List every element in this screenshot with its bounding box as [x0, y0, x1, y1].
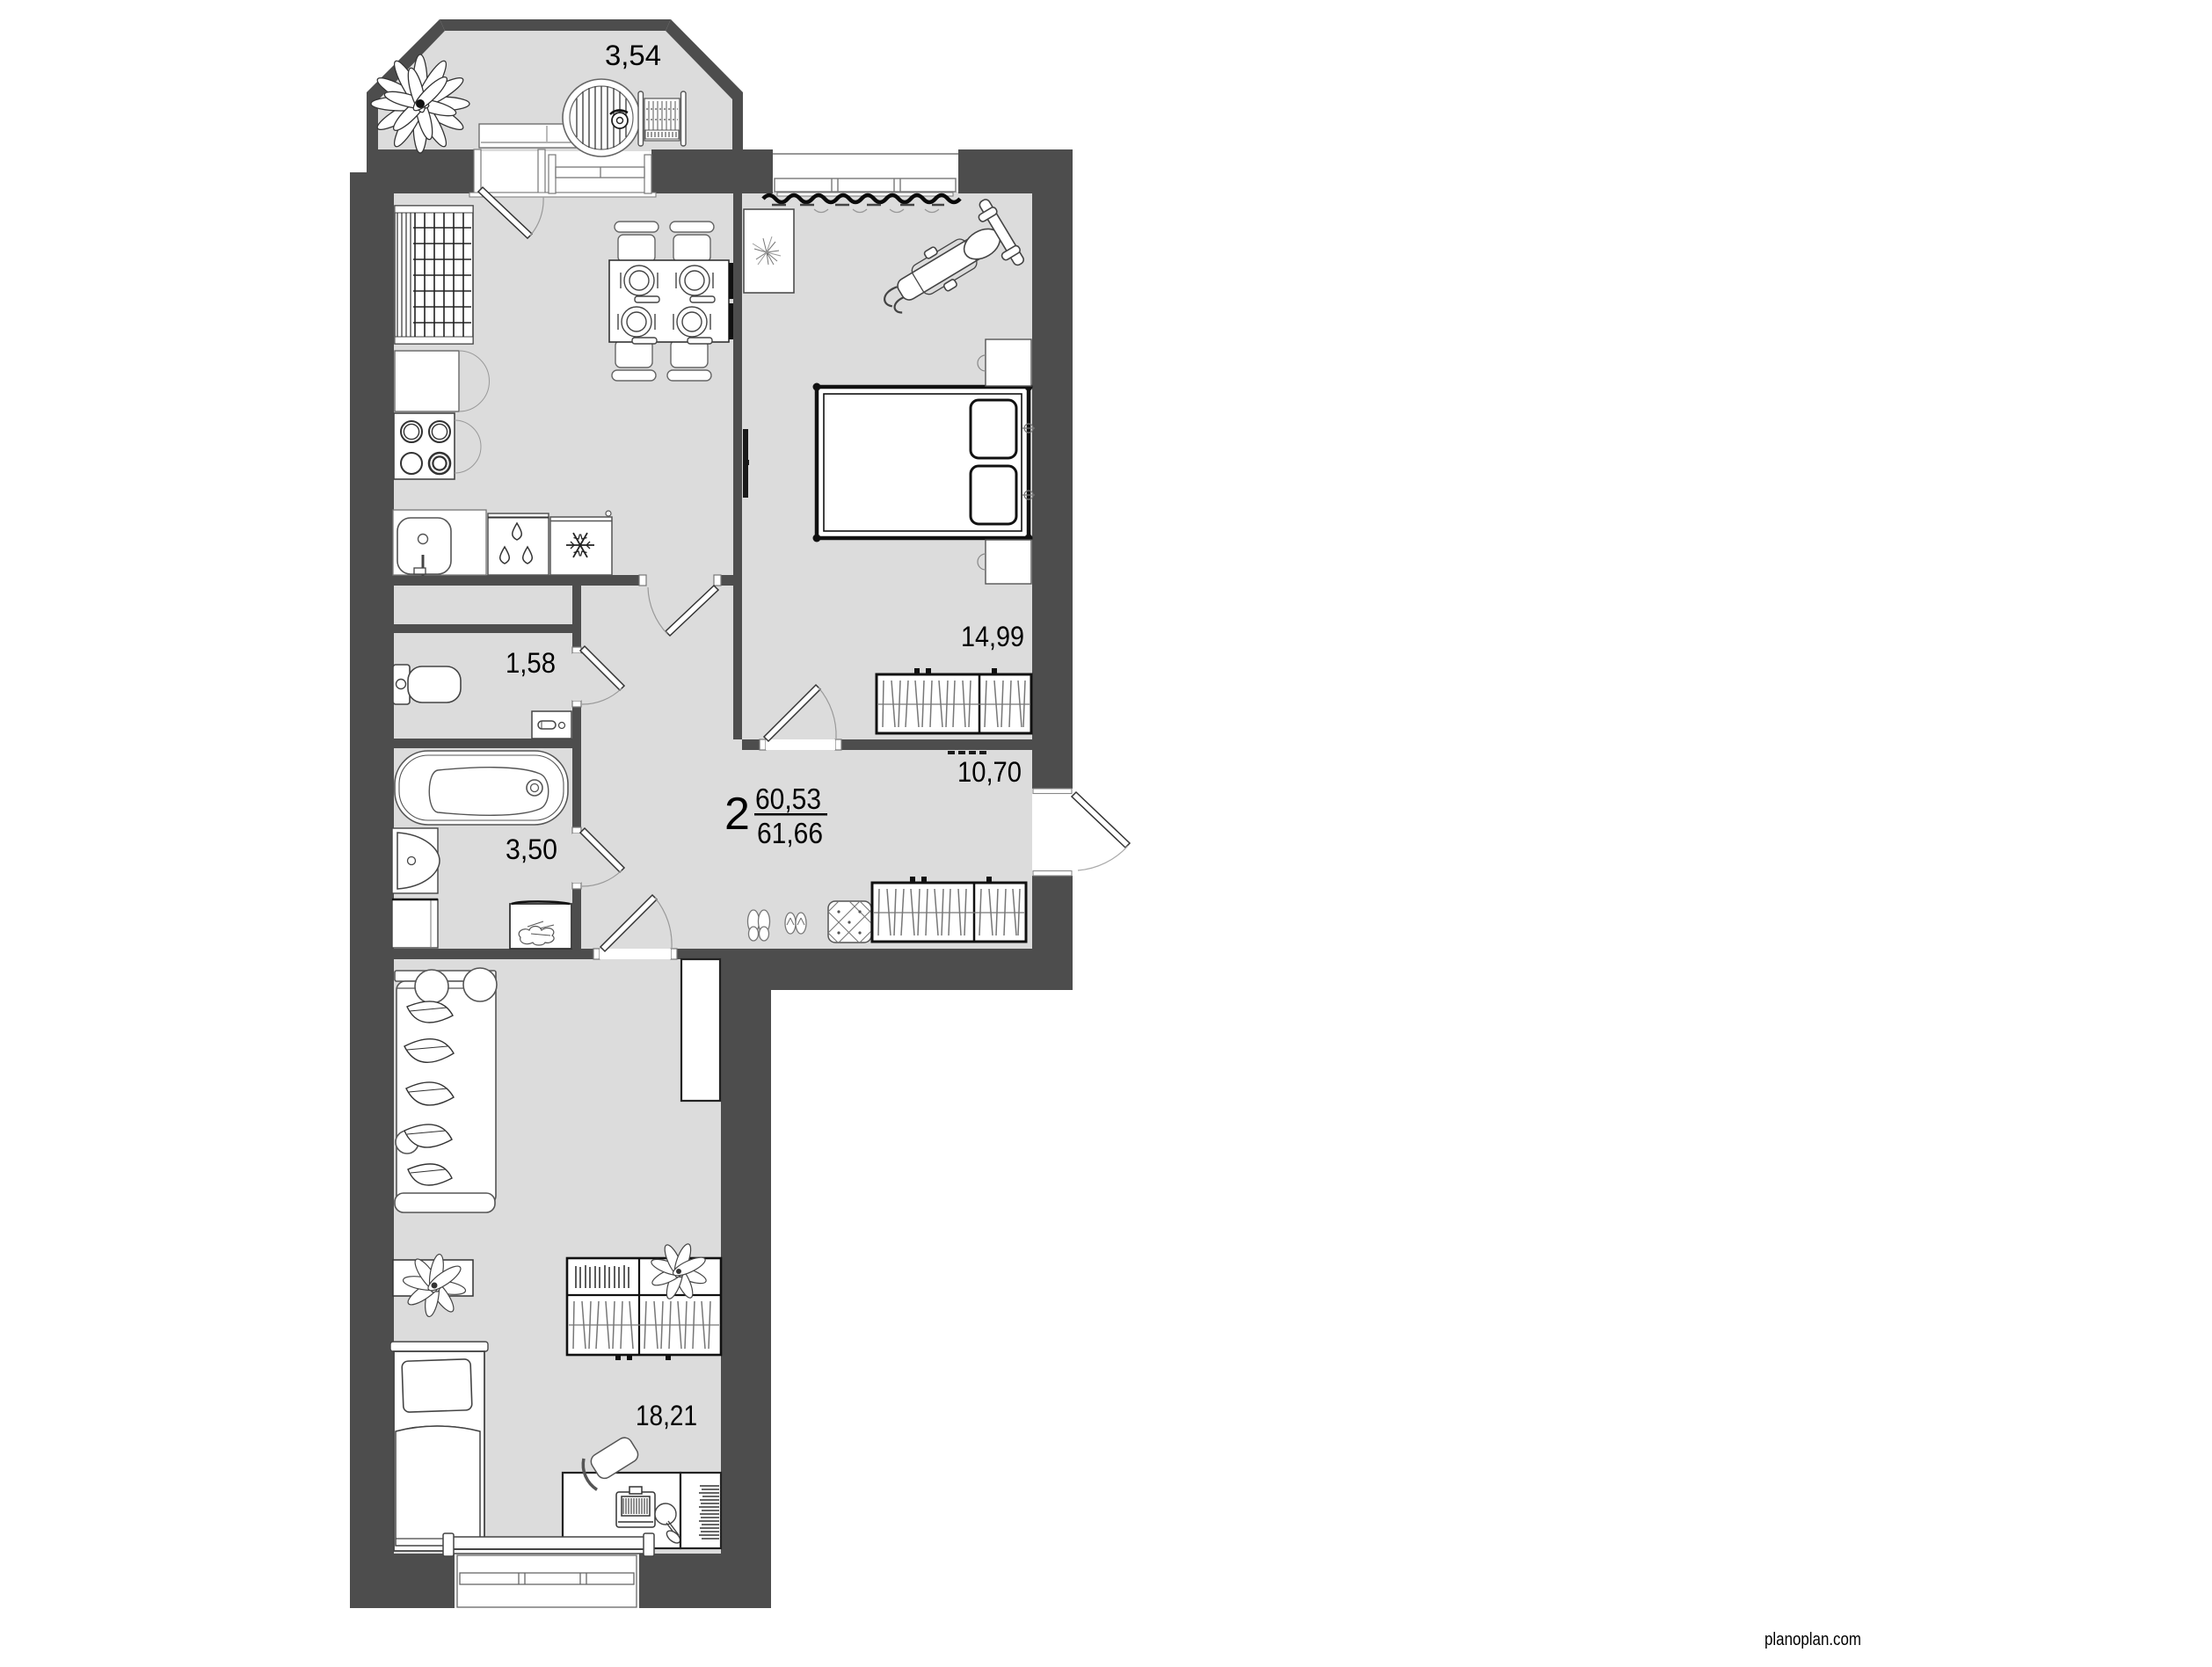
svg-text:61,66: 61,66: [757, 817, 823, 849]
svg-text:18,21: 18,21: [636, 1400, 697, 1431]
svg-text:10,70: 10,70: [957, 756, 1022, 788]
svg-text:1,58: 1,58: [506, 647, 556, 679]
svg-text:2: 2: [724, 789, 750, 840]
svg-text:planoplan.com: planoplan.com: [1765, 1630, 1861, 1649]
svg-text:3,54: 3,54: [605, 40, 661, 71]
svg-text:3,50: 3,50: [506, 833, 557, 865]
svg-text:14,99: 14,99: [961, 621, 1024, 652]
svg-text:60,53: 60,53: [755, 783, 821, 815]
